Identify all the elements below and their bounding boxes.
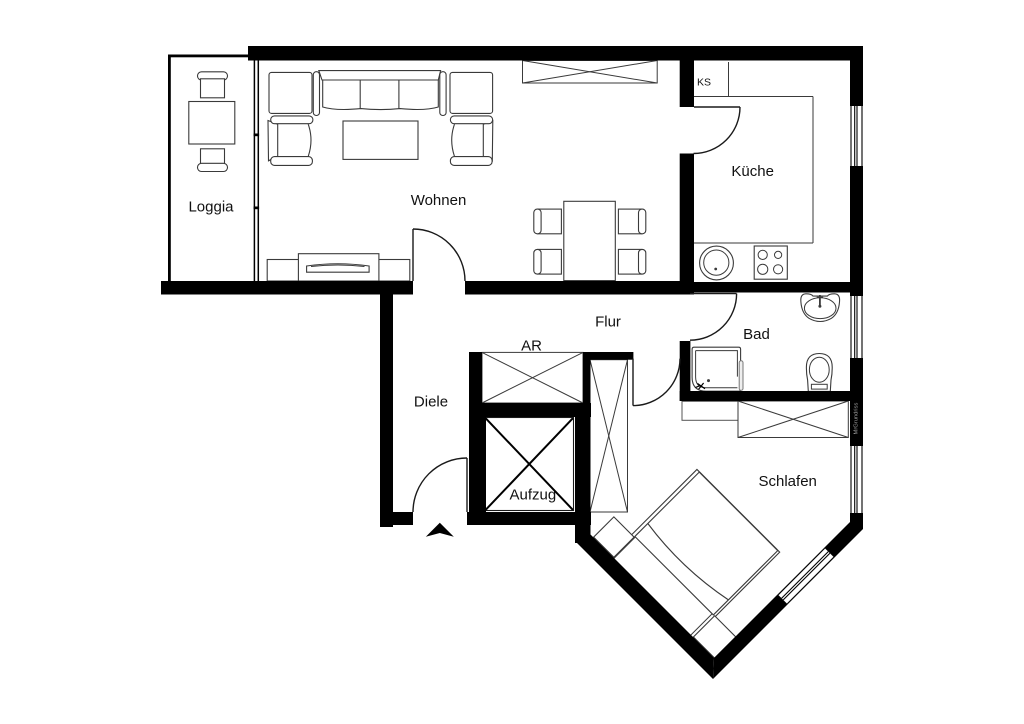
svg-text:AR: AR bbox=[521, 338, 542, 355]
svg-text:Küche: Küche bbox=[731, 163, 774, 180]
svg-text:Flur: Flur bbox=[595, 313, 621, 330]
svg-text:Schlafen: Schlafen bbox=[759, 473, 817, 490]
svg-text:Loggia: Loggia bbox=[188, 199, 234, 216]
svg-text:Wohnen: Wohnen bbox=[411, 192, 467, 209]
svg-text:Diele: Diele bbox=[414, 394, 448, 411]
svg-text:MrGrundriss: MrGrundriss bbox=[854, 403, 860, 435]
svg-text:KS: KS bbox=[697, 76, 711, 88]
svg-text:Aufzug: Aufzug bbox=[510, 487, 557, 504]
svg-text:Bad: Bad bbox=[743, 326, 770, 343]
